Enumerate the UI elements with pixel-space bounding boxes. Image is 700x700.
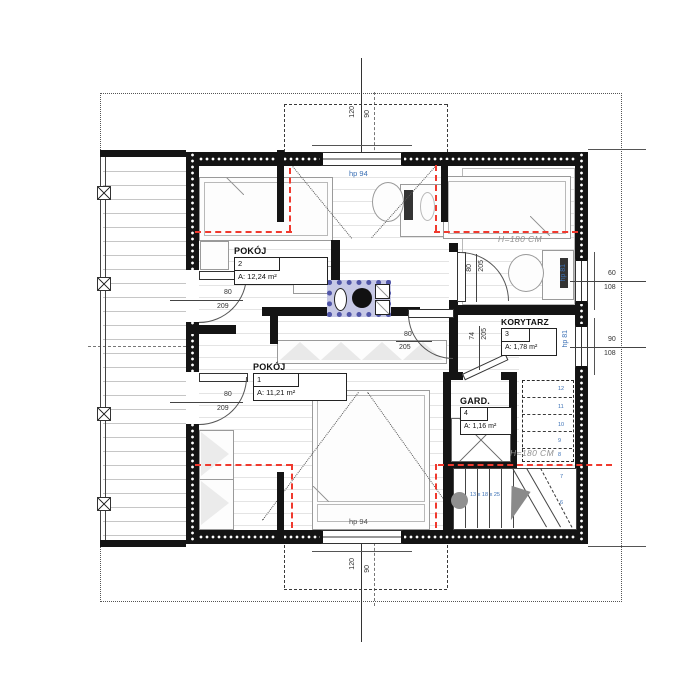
dim-leader (396, 341, 432, 342)
window-top (320, 152, 404, 166)
dim-window-right-lower-w: 90 (608, 336, 616, 344)
window-sill (312, 551, 412, 552)
room-title-pokoj2: POKÓJ (234, 246, 267, 256)
dim-window-right-upper-w: 60 (608, 270, 616, 278)
dim-axis-bottom-a: 120 (349, 558, 357, 570)
window-sill (312, 145, 412, 146)
nightstand (200, 241, 229, 270)
dim-door-korytarz-h: 205 (481, 328, 489, 340)
knee-wall-line (289, 168, 291, 231)
wall-gard-left (443, 372, 451, 470)
room-number: 4 (461, 408, 488, 421)
bed-fold (530, 216, 550, 236)
room-box-pokoj1: 1 A: 11,21 m² (253, 373, 347, 401)
step-number: 6 (560, 500, 563, 506)
section-bar (277, 472, 284, 540)
dim-leader (570, 347, 646, 348)
room-area: A: 1,78 m² (502, 342, 556, 355)
deck (103, 158, 186, 540)
wall-gard-top (501, 372, 517, 380)
section-bar (441, 160, 448, 222)
dormer-outline-bottom-right (447, 545, 448, 588)
dim-leader (170, 402, 243, 403)
height-label-bottom: H=180 CM (510, 448, 554, 458)
knee-wall-line (438, 464, 612, 466)
deck-edge (100, 152, 106, 545)
dormer-outline-top-left (284, 104, 285, 152)
desk (542, 250, 574, 300)
section-bar (277, 150, 284, 222)
step-number: 7 (560, 474, 563, 480)
bed-inner (204, 182, 328, 236)
dormer-outline-bottom (284, 589, 447, 590)
office-chair (372, 182, 404, 222)
step-number: 8 (558, 452, 561, 458)
dim-door-chimney-h: 205 (399, 344, 411, 352)
bed-pillow (317, 504, 425, 522)
deck-top-bar (100, 150, 186, 157)
dim-axis-bottom-b: 90 (364, 565, 372, 573)
dim-leader (476, 254, 477, 302)
wall-interior (186, 325, 236, 334)
window-label-top: hp 94 (349, 170, 368, 178)
closet-rod-icon (362, 342, 402, 360)
chimney-duct (375, 284, 390, 299)
door-gap (186, 372, 199, 424)
room-area: A: 1,16 m² (461, 421, 511, 434)
window-bottom (320, 530, 404, 544)
room-title-korytarz: KORYTARZ (501, 317, 549, 327)
closet-rod-icon (280, 342, 320, 360)
stair-tread (489, 468, 490, 528)
dim-door-left-top-w: 80 (224, 289, 232, 297)
wall-interior (270, 308, 278, 344)
stair-tread (501, 468, 502, 528)
room-area: A: 12,24 m² (235, 271, 327, 284)
room-box-korytarz: 3 A: 1,78 m² (501, 328, 557, 356)
step-number: 9 (558, 438, 561, 444)
dim-door-left-top-h: 209 (217, 303, 229, 311)
dim-door-korytarz-w: 74 (469, 332, 477, 340)
chimney-flue-circle (352, 288, 372, 308)
dim-leader (570, 281, 646, 282)
room-number: 1 (254, 374, 299, 387)
knee-wall-line (435, 165, 437, 231)
dim-door-room-right-h: 205 (478, 260, 486, 272)
knee-wall-line (291, 464, 293, 528)
office-chair (508, 254, 544, 292)
door-gap (186, 270, 199, 322)
knee-wall-line (434, 231, 578, 233)
deck-post (97, 277, 111, 291)
stair-tread (522, 397, 572, 398)
bed-fold (313, 486, 329, 502)
dim-door-room-right-w: 80 (466, 264, 474, 272)
dormer-outline-top (284, 104, 447, 105)
desk-item (420, 192, 435, 221)
dormer-outline-bottom-left (284, 545, 285, 588)
stair-formula: 13 x 18 x 25 (470, 492, 500, 498)
dormer-outline-top-right (447, 104, 448, 152)
eaves-line (588, 546, 646, 547)
dim-door-chimney-w: 80 (404, 331, 412, 339)
dim-window-right-lower-h: 108 (604, 350, 616, 358)
chimney-vent-oval (334, 288, 347, 311)
room-number: 3 (502, 329, 530, 342)
room-area: A: 11,21 m² (254, 387, 346, 400)
wall-interior (457, 305, 576, 315)
dim-leader (170, 300, 243, 301)
wardrobe-rod-icon (201, 432, 229, 476)
height-label-top: H=180 CM (498, 234, 542, 244)
window-label-right-upper: hp 81 (560, 264, 568, 282)
wall-left (186, 152, 199, 544)
floor-plan-canvas: 12 11 10 9 8 7 6 13 x 18 x 25 H=180 CM H… (0, 0, 700, 700)
deck-post (97, 497, 111, 511)
deck-bottom-bar (100, 540, 186, 547)
dim-axis-top-b: 90 (364, 110, 372, 118)
wall-gard-top (443, 372, 463, 380)
room-box-gard: 4 A: 1,16 m² (460, 407, 512, 435)
chimney-duct (375, 300, 390, 315)
deck-post (97, 407, 111, 421)
dim-leader (479, 326, 480, 370)
window-label-right-lower: hp 81 (562, 330, 570, 348)
stair-tread (522, 431, 572, 432)
stair-tread (477, 468, 478, 528)
eaves-line (588, 149, 646, 150)
stair-tread (522, 414, 572, 415)
step-number: 11 (558, 404, 564, 410)
closet-rod-icon (321, 342, 361, 360)
wardrobe-rod-icon (201, 481, 229, 525)
dim-door-left-bottom-h: 209 (217, 405, 229, 413)
room-box-pokoj2: 2 A: 12,24 m² (234, 257, 328, 285)
bed-fold (226, 177, 244, 195)
stair-post (451, 492, 468, 509)
knee-wall-line (435, 464, 437, 528)
dim-axis-top-a: 120 (349, 106, 357, 118)
window-label-bottom: hp 94 (349, 518, 368, 526)
step-number: 12 (558, 386, 564, 392)
dim-door-left-bottom-w: 80 (224, 391, 232, 399)
room-number: 2 (235, 258, 280, 271)
room-title-pokoj1: POKÓJ (253, 362, 286, 372)
step-number: 10 (558, 422, 564, 428)
deck-post (97, 186, 111, 200)
knee-wall-line (195, 464, 292, 466)
knee-wall-line (195, 231, 292, 233)
dim-window-right-upper-h: 108 (604, 284, 616, 292)
room-title-gard: GARD. (460, 396, 490, 406)
